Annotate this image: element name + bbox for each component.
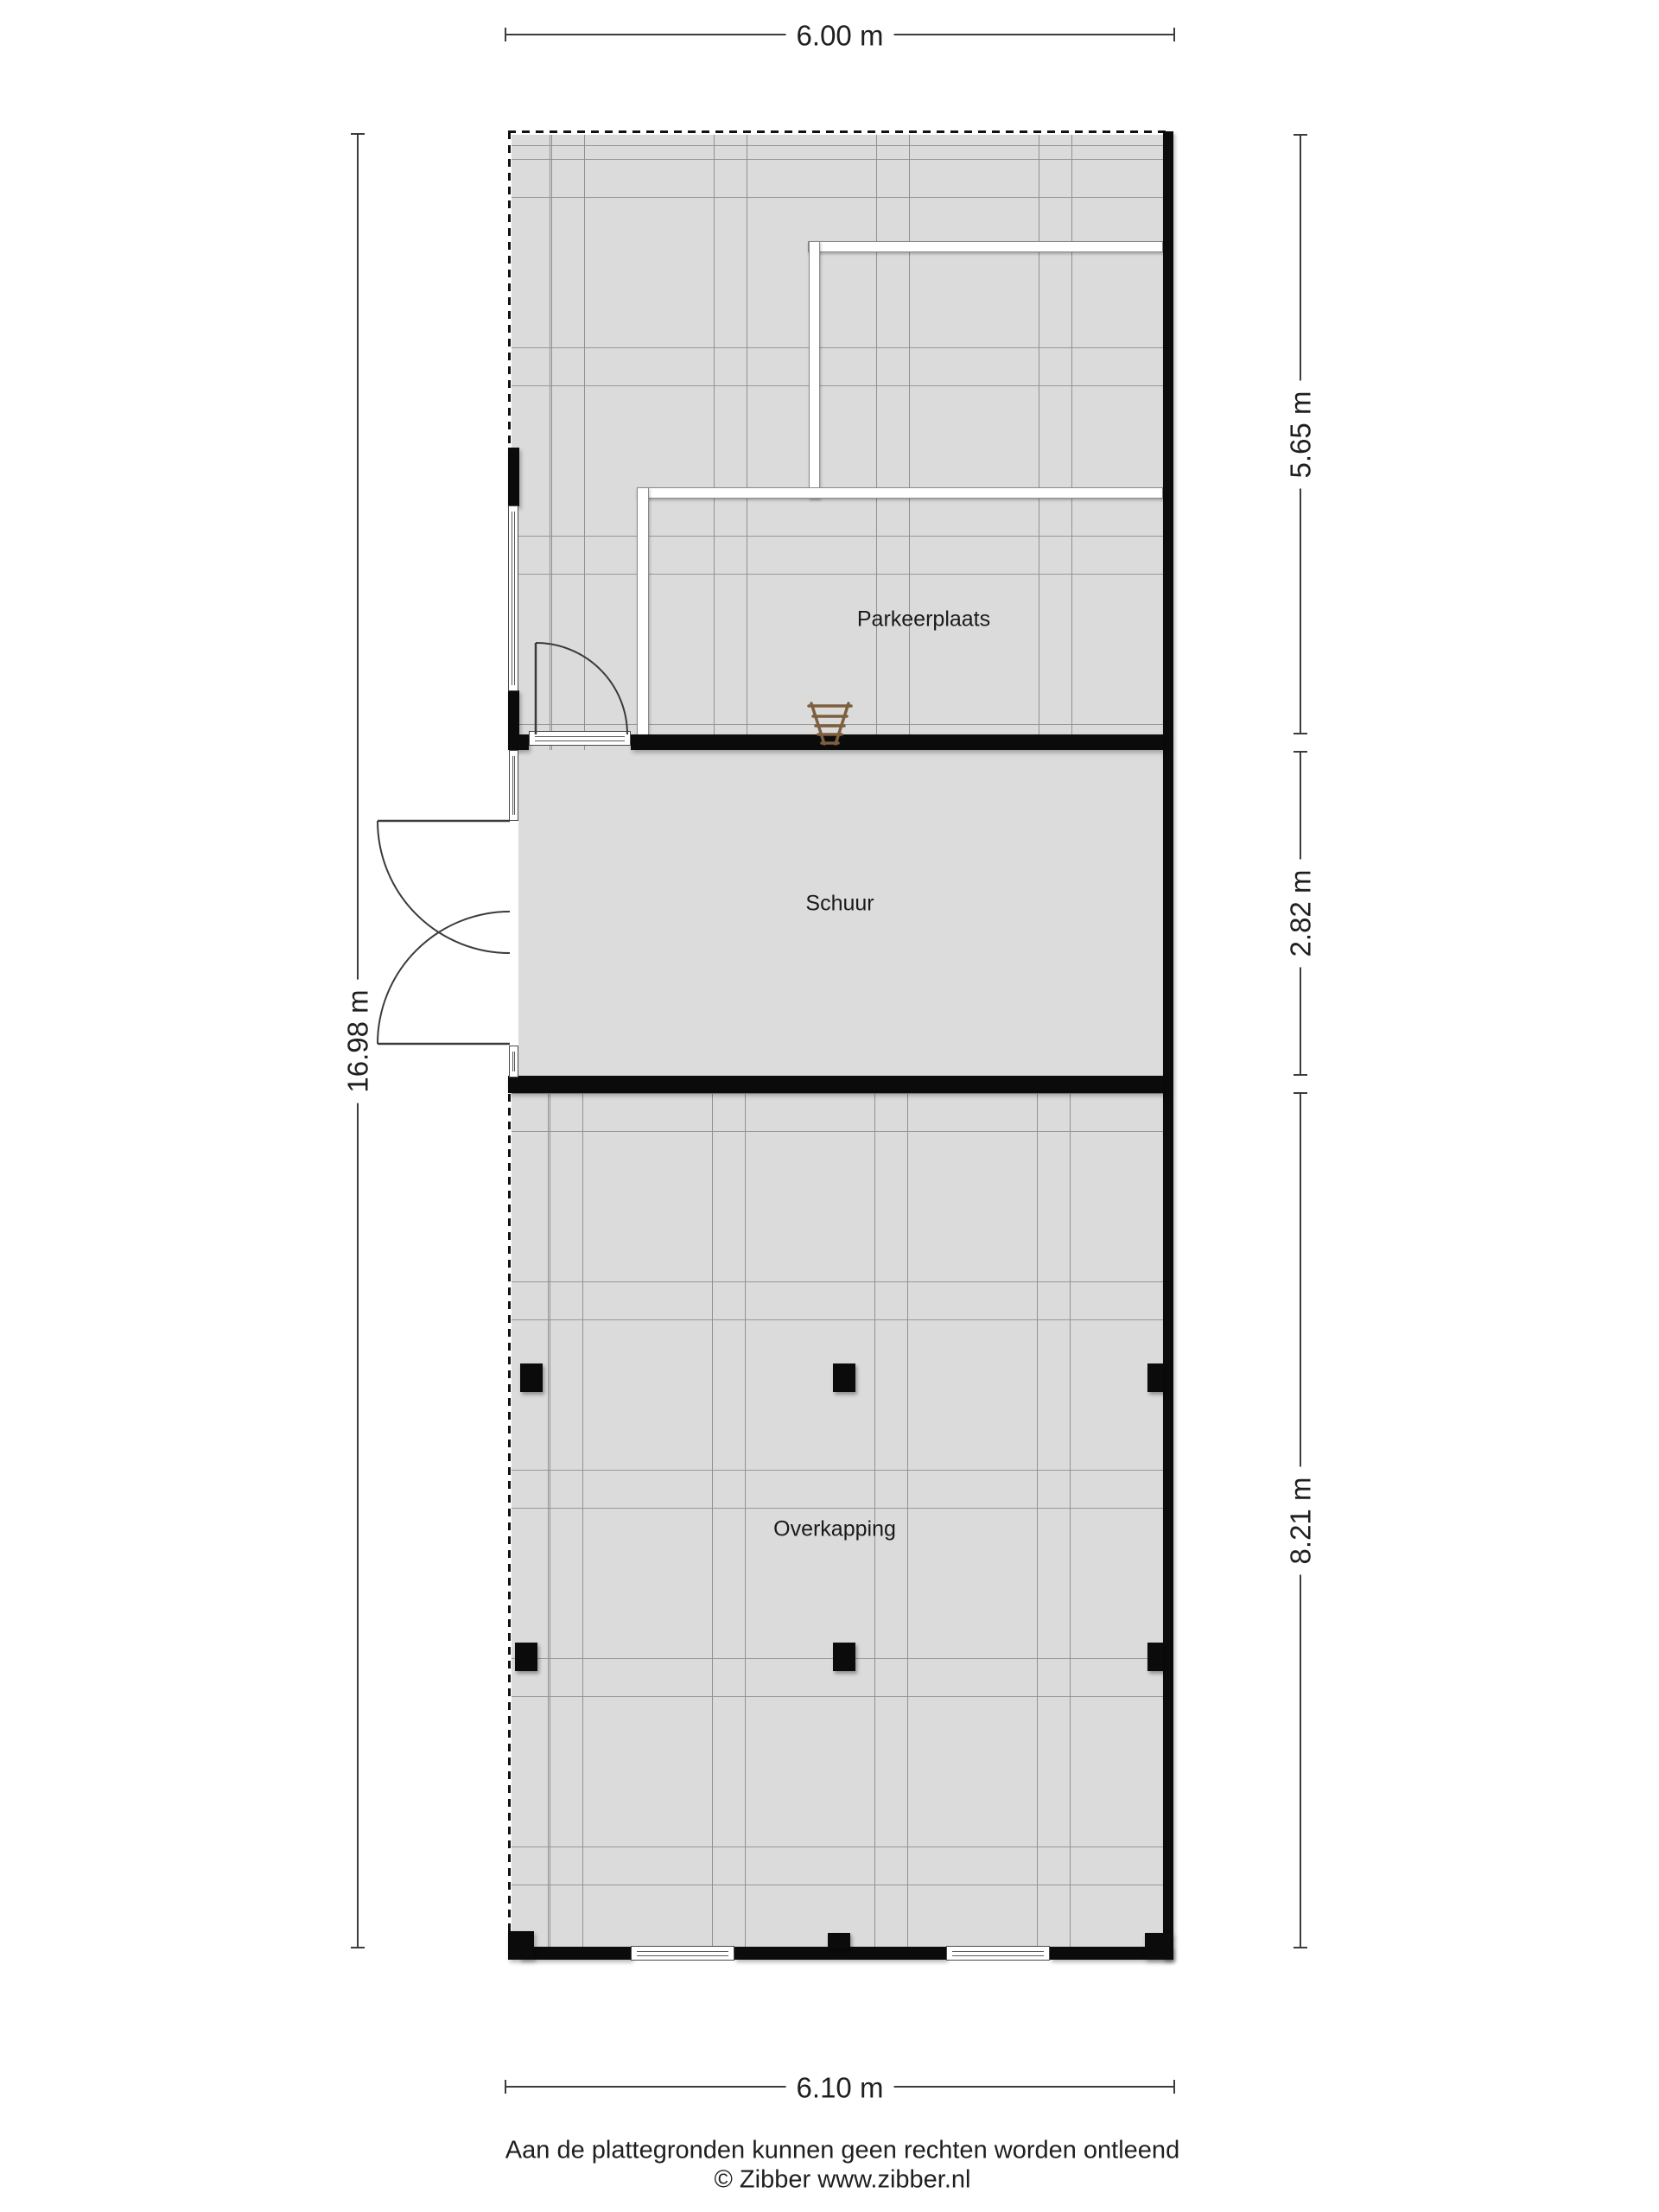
post-row1-center [833,1363,855,1392]
bottom-wall-segment-left [519,1947,632,1960]
floorplan-page: { "rooms": [ {"name": "Parkeerplaats"}, … [0,0,1659,2212]
schuur-left-frame-lower [509,1046,518,1077]
dimension-label-top: 6.00 m [786,19,894,53]
footer-credit: © Zibber www.zibber.nl [715,2165,971,2194]
inner-wall-vertical-lower [637,487,649,735]
dimension-tick [505,28,506,41]
post-row1-left [520,1363,543,1392]
left-wall-upper-segment [508,448,519,506]
dimension-tick [1294,1092,1307,1094]
dimension-tick [1173,2080,1175,2094]
boundary-dashed-left-lower [508,1094,511,1935]
bottom-wall-segment-middle [734,1947,946,1960]
post-row2-right [1147,1643,1163,1671]
post-row2-center [833,1643,855,1671]
schuur-left-frame-upper [509,750,518,821]
boundary-dashed-left-upper [508,131,511,448]
post-row2-left [515,1643,537,1671]
parkeerplaats-door-sill [529,731,631,746]
parkeerplaats-floor [512,135,1163,752]
dimension-tick [1294,1947,1307,1948]
post-row1-right [1147,1363,1163,1392]
dimension-tick [505,2080,506,2094]
dimension-tick [351,1947,365,1948]
bottom-wall-window-right [946,1946,1050,1961]
dimension-label-right-2: 2.82 m [1284,860,1318,968]
inner-wall-horizontal-upper [808,241,1163,252]
schuur-double-door-swing [378,821,510,1044]
divider-wall-parkeerplaats-schuur-left [518,734,529,750]
divider-wall-parkeerplaats-schuur-right [631,734,1163,750]
dimension-tick [1173,28,1175,41]
divider-wall-schuur-overkapping [508,1076,1163,1093]
room-label-parkeerplaats: Parkeerplaats [857,609,990,631]
dimension-label-right-3: 8.21 m [1284,1467,1318,1575]
dimension-label-right-1: 5.65 m [1284,381,1318,489]
bottom-wall-window-left [631,1946,734,1961]
right-wall [1163,131,1173,1960]
dimension-tick [1294,134,1307,136]
dimension-tick [1294,1074,1307,1076]
footer-disclaimer: Aan de plattegronden kunnen geen rechten… [505,2136,1179,2164]
dimension-tick [351,133,365,135]
inner-wall-horizontal-lower [637,487,1163,499]
room-label-schuur: Schuur [805,893,874,915]
dimension-label-bottom: 6.10 m [786,2071,894,2105]
room-label-overkapping: Overkapping [773,1519,896,1541]
bottom-wall-corner-left [508,1931,534,1960]
dimension-label-left: 16.98 m [341,979,375,1103]
boundary-dashed-top [508,130,1168,133]
inner-wall-vertical-upper [809,241,820,499]
bottom-wall-post-center [828,1933,850,1948]
dimension-tick [1294,751,1307,753]
dimension-tick [1294,733,1307,734]
bottom-wall-corner-right [1145,1933,1173,1960]
parkeerplaats-left-window [508,505,518,691]
